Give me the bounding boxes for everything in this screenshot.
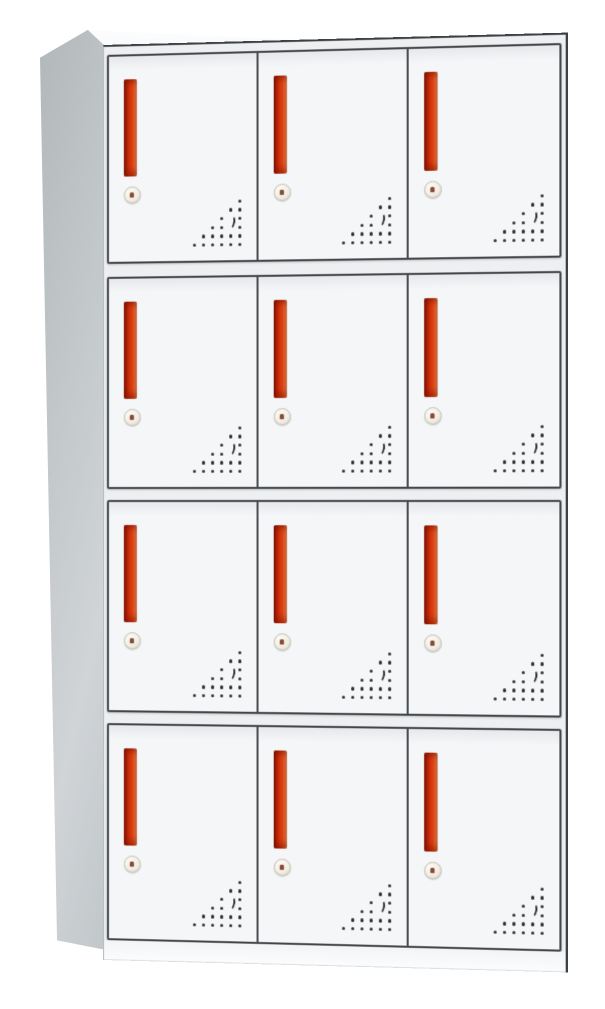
vent-cell bbox=[339, 675, 348, 684]
vent-row bbox=[190, 432, 244, 441]
vent-cell bbox=[348, 440, 357, 449]
vent-cell bbox=[235, 878, 244, 887]
vent-hole-dot bbox=[512, 931, 515, 934]
vent-hole-dot bbox=[540, 238, 543, 241]
vent-cell bbox=[217, 423, 226, 432]
vent-hole-dot bbox=[512, 452, 515, 455]
vent-hole-dot bbox=[388, 425, 391, 428]
vent-cell bbox=[339, 458, 348, 467]
vent-cell bbox=[217, 432, 226, 441]
vent-cell bbox=[509, 458, 518, 467]
vent-hole-dot bbox=[193, 694, 196, 697]
vent-cell bbox=[367, 684, 376, 693]
vent-hole-dot bbox=[522, 689, 525, 692]
vent-cell bbox=[537, 422, 546, 431]
ventilation-holes bbox=[490, 191, 546, 245]
vent-cell bbox=[376, 432, 385, 441]
vent-cell bbox=[348, 658, 357, 667]
vent-hole-dot bbox=[238, 426, 241, 429]
ventilation-holes bbox=[339, 423, 394, 476]
vent-cell bbox=[348, 684, 357, 693]
vent-cell bbox=[348, 467, 357, 476]
vent-cell bbox=[357, 229, 366, 238]
vent-hole-dot bbox=[238, 686, 241, 689]
vent-cell bbox=[509, 650, 518, 659]
vent-cell bbox=[199, 691, 208, 700]
vent-cell bbox=[537, 893, 546, 902]
vent-cell bbox=[339, 889, 348, 898]
vent-cell bbox=[208, 423, 217, 432]
vent-cell bbox=[226, 205, 235, 214]
vent-cell bbox=[519, 449, 528, 458]
vent-cell bbox=[217, 683, 226, 692]
vent-hole-dot bbox=[360, 910, 363, 913]
vent-cell bbox=[519, 191, 528, 200]
vent-cell bbox=[339, 906, 348, 915]
vent-cell bbox=[235, 657, 244, 666]
vent-cell bbox=[235, 441, 244, 450]
vent-cell bbox=[376, 684, 385, 693]
vent-cell bbox=[490, 201, 499, 210]
vent-cell bbox=[190, 691, 199, 700]
vent-cell bbox=[199, 424, 208, 433]
key-lock bbox=[424, 634, 442, 651]
vent-hole-dot bbox=[229, 686, 232, 689]
vent-cell bbox=[385, 220, 394, 229]
vent-cell bbox=[519, 928, 528, 937]
ventilation-holes bbox=[190, 196, 244, 249]
vent-cell bbox=[519, 458, 528, 467]
locker-door-r2c2 bbox=[257, 275, 407, 487]
vent-cell bbox=[500, 919, 509, 928]
vent-cell bbox=[537, 902, 546, 911]
locker-door-r1c2 bbox=[257, 49, 407, 260]
vent-cell bbox=[208, 665, 217, 674]
vent-cell bbox=[339, 440, 348, 449]
key-lock bbox=[274, 408, 291, 425]
vent-hole-dot bbox=[522, 680, 525, 683]
vent-hole-dot bbox=[238, 651, 241, 654]
vent-cell bbox=[339, 658, 348, 667]
locker-door-r2c1 bbox=[109, 277, 257, 487]
vent-cell bbox=[348, 221, 357, 230]
vent-hole-dot bbox=[220, 915, 223, 918]
vent-hole-dot bbox=[522, 239, 525, 242]
vent-cell bbox=[385, 916, 394, 925]
vent-cell bbox=[339, 649, 348, 658]
vent-cell bbox=[217, 657, 226, 666]
vent-hole-dot bbox=[238, 199, 241, 202]
vent-hole-dot bbox=[388, 910, 391, 913]
vent-cell bbox=[490, 668, 499, 677]
vent-cell bbox=[339, 667, 348, 676]
vent-hole-dot bbox=[522, 698, 525, 701]
vent-cell bbox=[367, 203, 376, 212]
vent-cell bbox=[500, 431, 509, 440]
vent-cell bbox=[528, 191, 537, 200]
vent-hole-dot bbox=[220, 906, 223, 909]
vent-cell bbox=[199, 912, 208, 921]
vent-cell bbox=[348, 898, 357, 907]
vent-cell bbox=[235, 231, 244, 240]
vent-cell bbox=[208, 877, 217, 886]
vent-hole-dot bbox=[370, 215, 373, 218]
vent-cell bbox=[217, 665, 226, 674]
vent-hole-dot bbox=[522, 922, 525, 925]
vent-cell bbox=[190, 467, 199, 476]
vent-cell bbox=[235, 196, 244, 205]
vent-cell bbox=[500, 659, 509, 668]
vent-cell bbox=[190, 424, 199, 433]
vent-cell bbox=[528, 236, 537, 245]
vent-cell bbox=[190, 894, 199, 903]
vent-hole-dot bbox=[531, 896, 534, 899]
vent-cell bbox=[367, 432, 376, 441]
vent-cell bbox=[500, 440, 509, 449]
vent-cell bbox=[367, 898, 376, 907]
vent-cell bbox=[537, 449, 546, 458]
vent-hole-dot bbox=[388, 661, 391, 664]
vent-hole-dot bbox=[531, 923, 534, 926]
vent-hole-dot bbox=[370, 461, 373, 464]
vent-cell bbox=[537, 440, 546, 449]
vent-cell bbox=[385, 194, 394, 203]
vent-cell bbox=[357, 667, 366, 676]
vent-cell bbox=[528, 695, 537, 704]
vent-cell bbox=[339, 915, 348, 924]
vent-cell bbox=[199, 877, 208, 886]
vent-hole-dot bbox=[238, 695, 241, 698]
vent-hole-dot bbox=[503, 689, 506, 692]
vent-cell bbox=[190, 450, 199, 459]
vent-hole-dot bbox=[540, 914, 543, 917]
keyhole-icon bbox=[280, 190, 284, 195]
vent-cell bbox=[500, 892, 509, 901]
vent-cell bbox=[348, 880, 357, 889]
vent-cell bbox=[235, 423, 244, 432]
vent-hole-dot bbox=[370, 696, 373, 699]
vent-hole-dot bbox=[379, 661, 382, 664]
vent-hole-dot bbox=[379, 461, 382, 464]
vent-cell bbox=[367, 693, 376, 702]
vent-cell bbox=[490, 928, 499, 937]
vent-hole-dot bbox=[220, 444, 223, 447]
vent-cell bbox=[208, 206, 217, 215]
vent-cell bbox=[199, 657, 208, 666]
vent-hole-dot bbox=[211, 235, 214, 238]
vent-cell bbox=[367, 676, 376, 685]
vent-cell bbox=[528, 200, 537, 209]
vent-cell bbox=[226, 913, 235, 922]
vent-cell bbox=[509, 919, 518, 928]
vent-hole-dot bbox=[370, 910, 373, 913]
vent-cell bbox=[208, 450, 217, 459]
vent-cell bbox=[357, 194, 366, 203]
vent-cell bbox=[199, 450, 208, 459]
vent-hole-dot bbox=[388, 205, 391, 208]
vent-cell bbox=[190, 877, 199, 886]
vent-cell bbox=[190, 197, 199, 206]
vent-row bbox=[490, 422, 546, 431]
vent-hole-dot bbox=[531, 662, 534, 665]
vent-cell bbox=[519, 422, 528, 431]
vent-cell bbox=[190, 441, 199, 450]
vent-hole-dot bbox=[238, 435, 241, 438]
vent-cell bbox=[537, 668, 546, 677]
vent-cell bbox=[357, 440, 366, 449]
vent-hole-dot bbox=[342, 241, 345, 244]
vent-cell bbox=[235, 921, 244, 930]
vent-hole-dot bbox=[238, 243, 241, 246]
vent-cell bbox=[357, 238, 366, 247]
vent-hole-dot bbox=[238, 677, 241, 680]
vent-cell bbox=[528, 929, 537, 938]
vent-cell bbox=[490, 892, 499, 901]
vent-cell bbox=[208, 197, 217, 206]
vent-cell bbox=[500, 210, 509, 219]
vent-cell bbox=[226, 921, 235, 930]
vent-cell bbox=[348, 194, 357, 203]
vent-cell bbox=[367, 667, 376, 676]
vent-hole-dot bbox=[351, 927, 354, 930]
vent-hole-dot bbox=[379, 696, 382, 699]
vent-hole-dot bbox=[522, 221, 525, 224]
vent-cell bbox=[490, 659, 499, 668]
keyhole-icon bbox=[130, 638, 134, 643]
vent-hole-dot bbox=[379, 232, 382, 235]
vent-hole-dot bbox=[193, 923, 196, 926]
vent-hole-dot bbox=[220, 452, 223, 455]
vent-hole-dot bbox=[540, 932, 543, 935]
locker-door-r1c3 bbox=[407, 45, 560, 258]
vent-hole-dot bbox=[388, 652, 391, 655]
vent-hole-dot bbox=[238, 470, 241, 473]
vent-cell bbox=[226, 683, 235, 692]
vent-row bbox=[490, 236, 546, 246]
vent-cell bbox=[190, 215, 199, 224]
vent-cell bbox=[490, 192, 499, 201]
vent-cell bbox=[537, 651, 546, 660]
vent-cell bbox=[500, 422, 509, 431]
vent-hole-dot bbox=[238, 898, 241, 901]
vent-hole-dot bbox=[370, 919, 373, 922]
vent-hole-dot bbox=[512, 239, 515, 242]
vent-cell bbox=[190, 920, 199, 929]
door-handle bbox=[274, 525, 287, 623]
vent-cell bbox=[339, 221, 348, 230]
vent-cell bbox=[385, 467, 394, 476]
vent-cell bbox=[509, 695, 518, 704]
key-lock bbox=[424, 862, 442, 880]
vent-cell bbox=[367, 890, 376, 899]
vent-cell bbox=[199, 903, 208, 912]
vent-cell bbox=[509, 440, 518, 449]
vent-cell bbox=[376, 881, 385, 890]
vent-cell bbox=[217, 921, 226, 930]
vent-cell bbox=[509, 449, 518, 458]
vent-hole-dot bbox=[211, 243, 214, 246]
vent-hole-dot bbox=[522, 931, 525, 934]
vent-hole-dot bbox=[202, 461, 205, 464]
vent-cell bbox=[357, 649, 366, 658]
vent-cell bbox=[235, 648, 244, 657]
vent-hole-dot bbox=[370, 670, 373, 673]
vent-hole-dot bbox=[360, 452, 363, 455]
vent-cell bbox=[376, 194, 385, 203]
vent-cell bbox=[208, 912, 217, 921]
vent-hole-dot bbox=[220, 234, 223, 237]
vent-cell bbox=[235, 432, 244, 441]
vent-hole-dot bbox=[229, 694, 232, 697]
vent-cell bbox=[490, 910, 499, 919]
vent-cell bbox=[537, 227, 546, 236]
vent-cell bbox=[199, 886, 208, 895]
vent-hole-dot bbox=[211, 226, 214, 229]
vent-cell bbox=[519, 218, 528, 227]
vent-cell bbox=[235, 458, 244, 467]
vent-cell bbox=[509, 431, 518, 440]
vent-hole-dot bbox=[379, 893, 382, 896]
vent-cell bbox=[528, 884, 537, 893]
vent-row bbox=[190, 691, 244, 700]
vent-cell bbox=[235, 913, 244, 922]
vent-cell bbox=[199, 223, 208, 232]
key-lock bbox=[274, 184, 291, 201]
key-lock bbox=[424, 181, 442, 199]
vent-hole-dot bbox=[351, 696, 354, 699]
vent-hole-dot bbox=[238, 452, 241, 455]
vent-hole-dot bbox=[342, 927, 345, 930]
vent-hole-dot bbox=[388, 670, 391, 673]
vent-hole-dot bbox=[220, 470, 223, 473]
vent-cell bbox=[376, 916, 385, 925]
vent-cell bbox=[208, 432, 217, 441]
vent-hole-dot bbox=[379, 206, 382, 209]
vent-hole-dot bbox=[370, 901, 373, 904]
vent-hole-dot bbox=[540, 221, 543, 224]
vent-cell bbox=[367, 925, 376, 934]
vent-cell bbox=[339, 239, 348, 248]
vent-cell bbox=[199, 458, 208, 467]
door-row-2 bbox=[107, 271, 562, 489]
vent-hole-dot bbox=[388, 452, 391, 455]
vent-hole-dot bbox=[202, 685, 205, 688]
vent-cell bbox=[217, 912, 226, 921]
vent-cell bbox=[519, 209, 528, 218]
vent-cell bbox=[190, 903, 199, 912]
vent-cell bbox=[199, 665, 208, 674]
vent-cell bbox=[367, 907, 376, 916]
vent-hole-dot bbox=[540, 923, 543, 926]
vent-hole-dot bbox=[211, 677, 214, 680]
vent-row bbox=[190, 450, 244, 459]
vent-cell bbox=[500, 218, 509, 227]
vent-cell bbox=[385, 458, 394, 467]
vent-cell bbox=[357, 898, 366, 907]
ventilation-holes bbox=[490, 422, 546, 475]
vent-hole-dot bbox=[238, 924, 241, 927]
vent-hole-dot bbox=[531, 203, 534, 206]
vent-hole-dot bbox=[531, 230, 534, 233]
vent-hole-dot bbox=[522, 905, 525, 908]
vent-hole-dot bbox=[503, 230, 506, 233]
vent-hole-dot bbox=[370, 928, 373, 931]
vent-hole-dot bbox=[540, 671, 543, 674]
vent-cell bbox=[357, 221, 366, 230]
vent-hole-dot bbox=[238, 208, 241, 211]
locker-door-r3c3 bbox=[407, 502, 560, 716]
ventilation-holes bbox=[190, 648, 244, 701]
vent-hole-dot bbox=[540, 698, 543, 701]
vent-hole-dot bbox=[220, 243, 223, 246]
vent-hole-dot bbox=[229, 915, 232, 918]
vent-hole-dot bbox=[540, 425, 543, 428]
vent-cell bbox=[217, 214, 226, 223]
door-handle bbox=[424, 72, 437, 171]
vent-hole-dot bbox=[351, 470, 354, 473]
vent-hole-dot bbox=[522, 230, 525, 233]
ventilation-holes bbox=[339, 194, 394, 248]
cabinet-front-face bbox=[103, 33, 568, 973]
vent-hole-dot bbox=[540, 230, 543, 233]
vent-hole-dot bbox=[202, 694, 205, 697]
vent-cell bbox=[519, 686, 528, 695]
vent-cell bbox=[357, 449, 366, 458]
door-handle bbox=[124, 525, 137, 622]
vent-cell bbox=[208, 921, 217, 930]
vent-cell bbox=[199, 197, 208, 206]
vent-cell bbox=[226, 692, 235, 701]
vent-hole-dot bbox=[229, 234, 232, 237]
vent-cell bbox=[226, 648, 235, 657]
vent-hole-dot bbox=[531, 931, 534, 934]
vent-cell bbox=[208, 214, 217, 223]
door-handle bbox=[424, 525, 437, 624]
vent-cell bbox=[490, 440, 499, 449]
vent-hole-dot bbox=[503, 469, 506, 472]
vent-cell bbox=[376, 203, 385, 212]
vent-cell bbox=[537, 431, 546, 440]
vent-cell bbox=[208, 683, 217, 692]
vent-cell bbox=[217, 674, 226, 683]
vent-cell bbox=[235, 666, 244, 675]
vent-hole-dot bbox=[229, 461, 232, 464]
vent-hole-dot bbox=[360, 224, 363, 227]
vent-cell bbox=[357, 423, 366, 432]
vent-hole-dot bbox=[360, 470, 363, 473]
vent-cell bbox=[208, 657, 217, 666]
vent-cell bbox=[217, 232, 226, 241]
vent-hole-dot bbox=[229, 660, 232, 663]
vent-cell bbox=[348, 649, 357, 658]
vent-hole-dot bbox=[388, 469, 391, 472]
door-handle bbox=[274, 300, 287, 398]
vent-cell bbox=[519, 431, 528, 440]
vent-hole-dot bbox=[388, 223, 391, 226]
vent-cell bbox=[190, 674, 199, 683]
vent-cell bbox=[537, 695, 546, 704]
vent-cell bbox=[537, 929, 546, 938]
vent-hole-dot bbox=[229, 924, 232, 927]
vent-hole-dot bbox=[503, 697, 506, 700]
vent-row bbox=[339, 467, 394, 476]
vent-cell bbox=[217, 877, 226, 886]
vent-cell bbox=[385, 440, 394, 449]
vent-cell bbox=[235, 887, 244, 896]
vent-cell bbox=[500, 901, 509, 910]
vent-cell bbox=[519, 911, 528, 920]
vent-cell bbox=[348, 667, 357, 676]
